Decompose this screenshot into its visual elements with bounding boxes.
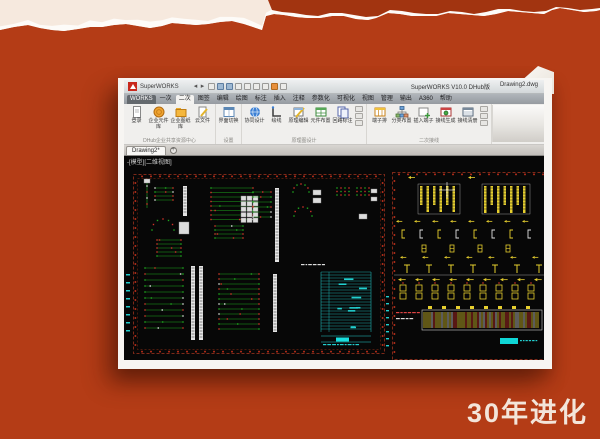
ribbon-group-设置: 界面切换设置	[216, 104, 242, 144]
ribbon-button-回路标注[interactable]: 回路标注	[332, 105, 353, 125]
ribbon-button-界面切换[interactable]: 界面切换	[218, 105, 239, 125]
ribbon-mini-tools	[354, 105, 364, 126]
slide-caption: 30年进化	[467, 391, 588, 430]
ribbon-tab-标注[interactable]: 标注	[252, 95, 270, 104]
plus-box-icon	[417, 105, 431, 119]
ribbon-empty-panel	[492, 105, 544, 142]
mini-tool-icon[interactable]	[355, 113, 363, 119]
quick-access-toolbar: ◂▸	[194, 83, 287, 90]
globe-icon	[248, 105, 262, 119]
mini-tool-icon[interactable]	[480, 120, 488, 126]
ribbon-button-label: 协同设计	[244, 119, 264, 125]
mini-tool-icon[interactable]	[355, 106, 363, 112]
back-icon[interactable]: ◂	[194, 83, 199, 90]
window-icon	[222, 105, 236, 119]
doc-pen-icon	[196, 105, 210, 119]
ribbon-group-DHub企业共享资源中心: 登录企业元件库企业图纸库云文件DHub企业共享资源中心	[124, 104, 216, 144]
ribbon-group-caption: DHub企业共享资源中心	[126, 137, 213, 144]
ribbon-button-元件布置[interactable]: 元件布置	[310, 105, 331, 125]
app-name: SuperWORKS	[140, 84, 179, 90]
ribbon-button-原理编辑[interactable]: 原理编辑	[288, 105, 309, 125]
slide: SuperWORKS ◂▸ SuperWORKS V10.0 DHub版 Dra…	[0, 0, 600, 439]
canvas-layout-label: -[模型][二维视图]	[127, 157, 172, 166]
ribbon-tab-插入[interactable]: 插入	[271, 95, 289, 104]
ribbon-tab-参数化[interactable]: 参数化	[309, 95, 333, 104]
ribbon-tab-管理[interactable]: 管理	[378, 95, 396, 104]
forward-icon[interactable]: ▸	[201, 83, 206, 90]
pages-icon	[336, 105, 350, 119]
file-tab-bar: Drawing2* +	[124, 145, 544, 156]
ribbon-tab-可视化[interactable]: 可视化	[334, 95, 358, 104]
undo-icon[interactable]	[244, 83, 251, 90]
ribbon-button-端子排[interactable]: 端子排	[369, 105, 390, 125]
title-version: SuperWORKS V10.0 DHub版	[411, 82, 490, 91]
settings-icon[interactable]	[271, 83, 278, 90]
ribbon-button-label: 元件布置	[310, 119, 330, 125]
save-icon[interactable]	[226, 83, 233, 90]
coin-icon	[152, 105, 166, 119]
lline-icon	[270, 105, 284, 119]
file-tab-drawing2[interactable]: Drawing2*	[126, 146, 166, 155]
print-icon[interactable]	[235, 83, 242, 90]
close-icon[interactable]	[280, 83, 287, 90]
ribbon-group-caption: 原理图设计	[244, 137, 364, 144]
ribbon-button-云文件[interactable]: 云文件	[192, 105, 213, 125]
ribbon-button-企业元件库[interactable]: 企业元件库	[148, 105, 169, 130]
ribbon-button-协同设计[interactable]: 协同设计	[244, 105, 265, 125]
new-tab-button[interactable]: +	[170, 147, 177, 154]
grid-green-icon	[314, 105, 328, 119]
ribbon-button-分类布置[interactable]: 分类布置	[391, 105, 412, 125]
doc-icon	[130, 105, 144, 119]
torn-paper-edge	[0, 0, 600, 50]
ribbon-button-label: 分类布置	[391, 119, 411, 125]
ribbon-button-label: 回路标注	[332, 119, 352, 125]
ribbon-tab-WORKS[interactable]: WORKS	[127, 95, 156, 104]
ribbon-tab-绘图[interactable]: 绘图	[233, 95, 251, 104]
table-blue-icon	[461, 105, 475, 119]
ribbon-button-label: 端子排	[372, 119, 387, 125]
ribbon-tab-编辑[interactable]: 编辑	[214, 95, 232, 104]
ribbon-button-接线生成[interactable]: 接线生成	[435, 105, 456, 125]
drawing-canvas[interactable]: -[模型][二维视图]	[124, 156, 544, 360]
ribbon: 登录企业元件库企业图纸库云文件DHub企业共享资源中心界面切换设置协同设计绘线原…	[124, 104, 544, 145]
ribbon-button-label: 绘线	[271, 119, 281, 125]
ribbon-group-caption: 二次接线	[369, 137, 489, 144]
ribbon-button-label: 插入端子	[413, 119, 433, 125]
mini-tool-icon[interactable]	[355, 120, 363, 126]
ribbon-tab-一次[interactable]: 一次	[157, 95, 175, 104]
ribbon-tab-注释[interactable]: 注释	[290, 95, 308, 104]
screenshot-card: SuperWORKS ◂▸ SuperWORKS V10.0 DHub版 Dra…	[118, 78, 552, 369]
ribbon-button-label: 接线生成	[435, 119, 455, 125]
ribbon-button-label: 接线清册	[457, 119, 477, 125]
ribbon-button-登录[interactable]: 登录	[126, 105, 147, 125]
open-icon[interactable]	[217, 83, 224, 90]
ribbon-tab-二次[interactable]: 二次	[176, 95, 194, 104]
new-icon[interactable]	[208, 83, 215, 90]
ribbon-tab-bar: WORKS一次二次图签编辑绘图标注插入注释参数化可视化视图管理输出A360帮助	[124, 94, 544, 104]
ribbon-mini-tools	[479, 105, 489, 126]
ribbon-tab-图签[interactable]: 图签	[195, 95, 213, 104]
ribbon-tab-A360[interactable]: A360	[416, 95, 436, 104]
ribbon-button-label: 云文件	[195, 119, 210, 125]
refresh-icon[interactable]	[262, 83, 269, 90]
ribbon-tab-视图[interactable]: 视图	[359, 95, 377, 104]
tree-icon	[395, 105, 409, 119]
grid-orange-icon	[373, 105, 387, 119]
folder-icon	[174, 105, 188, 119]
ribbon-button-企业图纸库[interactable]: 企业图纸库	[170, 105, 191, 130]
title-bar: SuperWORKS ◂▸ SuperWORKS V10.0 DHub版 Dra…	[124, 80, 544, 94]
cad-window: SuperWORKS ◂▸ SuperWORKS V10.0 DHub版 Dra…	[124, 80, 544, 360]
pencil-grid-icon	[292, 105, 306, 119]
ribbon-button-绘线[interactable]: 绘线	[266, 105, 287, 125]
ribbon-button-label: 界面切换	[218, 119, 238, 125]
ribbon-button-插入端子[interactable]: 插入端子	[413, 105, 434, 125]
title-doc: Drawing2.dwg	[500, 82, 538, 91]
table-red-icon	[439, 105, 453, 119]
drawing-canvas-graphics	[124, 156, 544, 360]
ribbon-button-接线清册[interactable]: 接线清册	[457, 105, 478, 125]
ribbon-button-label: 企业图纸库	[170, 119, 191, 130]
mini-tool-icon[interactable]	[480, 113, 488, 119]
ribbon-button-label: 原理编辑	[288, 119, 308, 125]
ribbon-tab-输出[interactable]: 输出	[397, 95, 415, 104]
ribbon-button-label: 登录	[131, 119, 141, 125]
ribbon-group-原理图设计: 协同设计绘线原理编辑元件布置回路标注原理图设计	[242, 104, 367, 144]
ribbon-button-label: 企业元件库	[148, 119, 169, 130]
mini-tool-icon[interactable]	[480, 106, 488, 112]
superworks-logo-icon	[128, 82, 137, 91]
ribbon-group-二次接线: 端子排分类布置插入端子接线生成接线清册二次接线	[367, 104, 492, 144]
window-title: SuperWORKS V10.0 DHub版 Drawing2.dwg	[411, 82, 540, 91]
ribbon-tab-帮助[interactable]: 帮助	[437, 95, 455, 104]
ribbon-group-caption: 设置	[218, 137, 239, 144]
redo-icon[interactable]	[253, 83, 260, 90]
